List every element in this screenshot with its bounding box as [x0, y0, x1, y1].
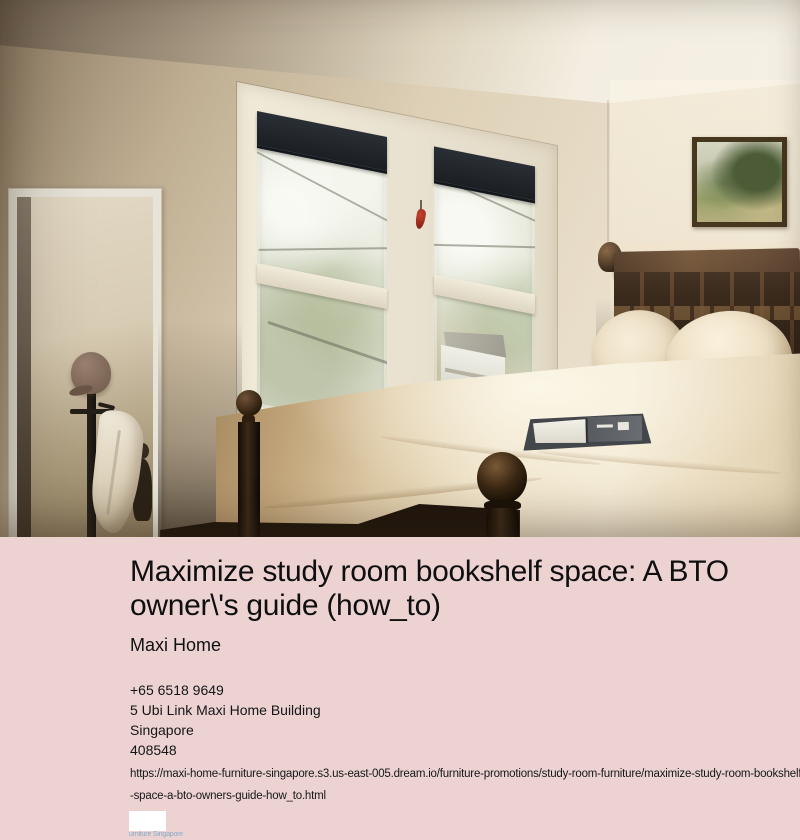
bed-post-far — [234, 390, 264, 537]
contact-block: +65 6518 9649 5 Ubi Link Maxi Home Build… — [130, 680, 800, 760]
book-page-left — [533, 419, 586, 444]
footer-logo: urniture Singapore — [129, 811, 199, 840]
bed-post-finial — [236, 390, 262, 416]
ornament-chili — [414, 208, 426, 229]
bed-post-shaft — [486, 508, 519, 537]
ornament-string — [420, 200, 422, 209]
open-book — [523, 413, 652, 450]
mirror-reflection-strip — [17, 197, 31, 537]
page: Maximize study room bookshelf space: A B… — [0, 0, 800, 840]
source-url-line1: https://maxi-home-furniture-singapore.s3… — [130, 763, 800, 785]
bed-post-finial — [477, 452, 527, 504]
power-line — [434, 244, 535, 249]
phone-number: +65 6518 9649 — [130, 680, 800, 700]
footer-logo-caption: urniture Singapore — [129, 831, 199, 838]
hanging-chili-ornament — [415, 200, 427, 236]
postal-code: 408548 — [130, 740, 800, 760]
bed-post-near — [477, 452, 529, 537]
painting-art — [697, 142, 782, 222]
business-name: Maxi Home — [130, 635, 800, 656]
framed-landscape-painting — [692, 137, 787, 227]
source-url-line2: -space-a-bto-owners-guide-how_to.html — [130, 785, 800, 807]
listing-info-section: Maximize study room bookshelf space: A B… — [0, 537, 800, 840]
book-page-right — [587, 416, 643, 443]
page-title: Maximize study room bookshelf space: A B… — [130, 555, 730, 623]
bedroom-photo — [0, 0, 800, 537]
info-content: Maximize study room bookshelf space: A B… — [0, 537, 800, 807]
source-url: https://maxi-home-furniture-singapore.s3… — [130, 763, 800, 807]
book-page-graphic — [597, 424, 612, 428]
footer-logo-image — [129, 811, 166, 831]
bed-post-shaft — [238, 422, 260, 537]
wall-corner — [607, 100, 609, 260]
city: Singapore — [130, 720, 800, 740]
tree-branch — [268, 321, 387, 374]
address-line: 5 Ubi Link Maxi Home Building — [130, 700, 800, 720]
tree-branch — [258, 247, 387, 251]
book-page-graphic — [617, 422, 629, 430]
